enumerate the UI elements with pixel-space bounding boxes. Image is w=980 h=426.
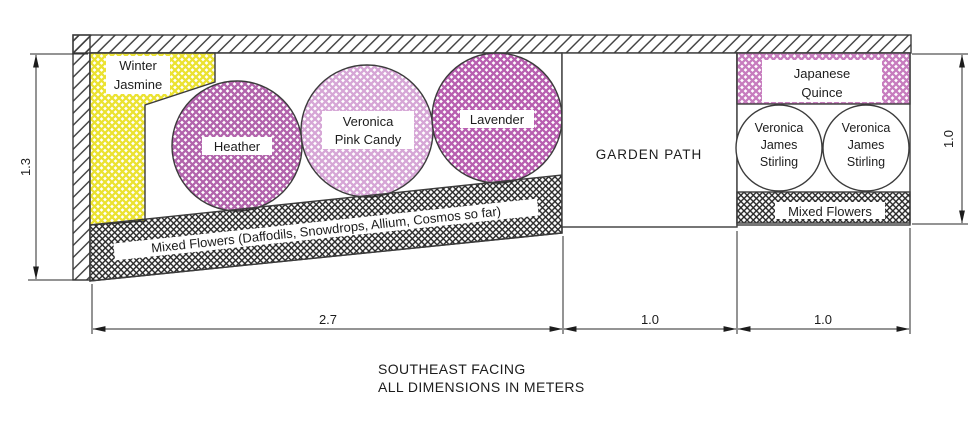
garden-path-label: GARDEN PATH <box>596 147 703 162</box>
garden-path-area <box>562 53 737 227</box>
japanese-quince-label: Quince <box>801 85 842 100</box>
veronica-james-stirling-label-2: Veronica <box>842 121 891 135</box>
japanese-quince-label: Japanese <box>794 66 850 81</box>
veronica-james-stirling-label-1: Veronica <box>755 121 804 135</box>
veronica-james-stirling-label-1: James <box>761 138 798 152</box>
veronica-james-stirling-label-2: Stirling <box>847 155 885 169</box>
dimension-right-height: 1.0 <box>912 54 968 224</box>
veronica-james-stirling-label-1: Stirling <box>760 155 798 169</box>
wall-left <box>73 35 90 280</box>
dim-right-height-value: 1.0 <box>941 130 956 148</box>
garden-plan-drawing: Winter Jasmine Heather Veronica Pink Can… <box>0 0 980 426</box>
dim-right-bed-width-value: 1.0 <box>814 312 832 327</box>
heather-label: Heather <box>214 139 261 154</box>
winter-jasmine-label: Winter <box>119 58 157 73</box>
note-units: ALL DIMENSIONS IN METERS <box>378 379 585 395</box>
lavender-label: Lavender <box>470 112 525 127</box>
winter-jasmine-label: Jasmine <box>114 77 162 92</box>
mixed-flowers-right-label: Mixed Flowers <box>788 204 872 219</box>
veronica-pink-candy-label: Veronica <box>343 114 394 129</box>
dim-left-height-value: 1.3 <box>18 158 33 176</box>
dim-left-bed-width-value: 2.7 <box>319 312 337 327</box>
dim-path-width-value: 1.0 <box>641 312 659 327</box>
wall-top <box>73 35 911 53</box>
veronica-pink-candy-label: Pink Candy <box>335 132 402 147</box>
note-facing: SOUTHEAST FACING <box>378 361 526 377</box>
veronica-james-stirling-label-2: James <box>848 138 885 152</box>
garden-plan-canvas: Winter Jasmine Heather Veronica Pink Can… <box>0 0 980 426</box>
